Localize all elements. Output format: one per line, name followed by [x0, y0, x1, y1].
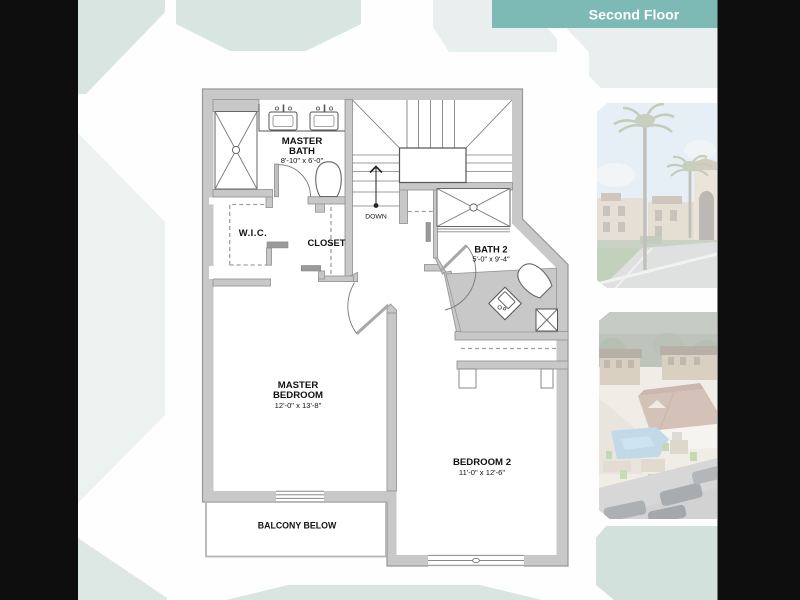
svg-text:11'-0" x 12'-6": 11'-0" x 12'-6" — [459, 468, 505, 477]
svg-text:CLOSET: CLOSET — [307, 237, 345, 248]
svg-text:Second Floor: Second Floor — [589, 8, 680, 24]
svg-text:DOWN: DOWN — [365, 214, 387, 221]
svg-text:12'-0" x 13'-8": 12'-0" x 13'-8" — [275, 401, 322, 410]
svg-text:BEDROOM 2: BEDROOM 2 — [453, 457, 511, 468]
svg-text:BEDROOM: BEDROOM — [273, 390, 323, 401]
svg-text:5'-0" x 9'-4": 5'-0" x 9'-4" — [472, 255, 510, 264]
svg-text:BATH 2: BATH 2 — [474, 244, 507, 255]
svg-text:W.I.C.: W.I.C. — [239, 227, 268, 238]
svg-text:BALCONY BELOW: BALCONY BELOW — [258, 521, 337, 531]
svg-text:8'-10" x 6'-0": 8'-10" x 6'-0" — [281, 156, 324, 165]
